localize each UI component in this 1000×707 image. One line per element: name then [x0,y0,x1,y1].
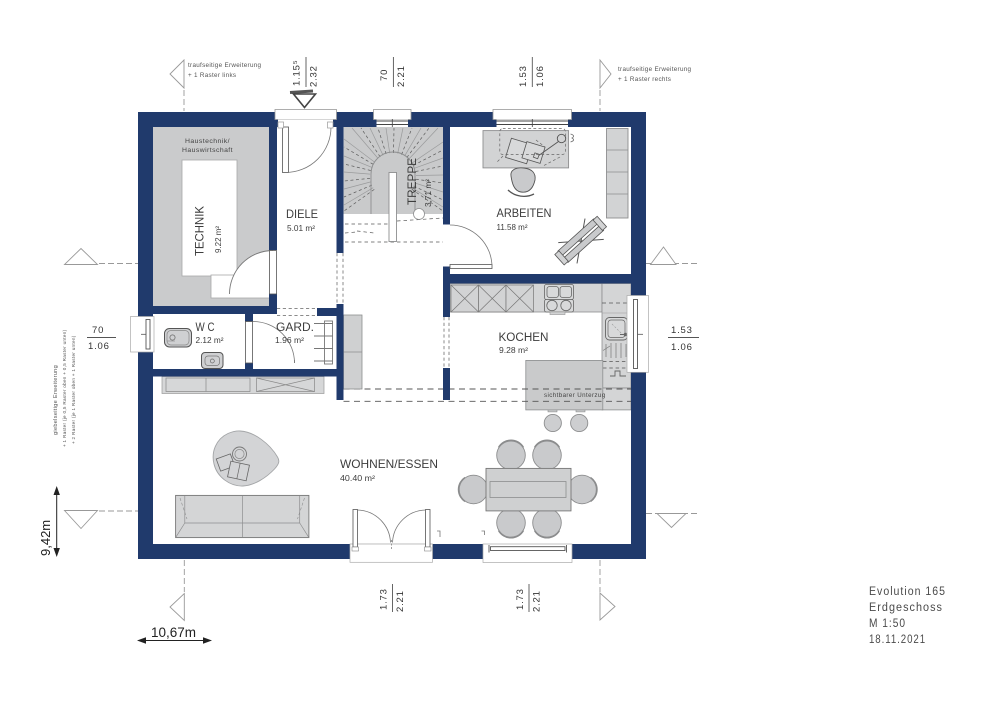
svg-text:+ 1 Raster links: + 1 Raster links [188,72,236,79]
svg-text:Haustechnik/: Haustechnik/ [185,138,230,145]
svg-text:2.21: 2.21 [396,65,407,87]
svg-text:+ 1 Raster rechts: + 1 Raster rechts [618,76,671,83]
svg-text:1.06: 1.06 [535,65,546,87]
svg-text:2.21: 2.21 [532,590,543,612]
svg-text:Erdgeschoss: Erdgeschoss [869,602,943,614]
svg-text:1.53: 1.53 [671,325,693,336]
svg-text:1.15⁵: 1.15⁵ [292,60,303,86]
svg-text:Hauswirtschaft: Hauswirtschaft [182,147,233,154]
svg-text:70: 70 [92,325,104,336]
svg-text:TREPPE: TREPPE [407,158,419,205]
svg-text:ARBEITEN: ARBEITEN [497,208,552,220]
svg-text:1.73: 1.73 [515,588,526,610]
svg-text:KOCHEN: KOCHEN [499,332,549,344]
svg-text:5.01 m²: 5.01 m² [287,224,315,233]
svg-text:sichtbarer Unterzug: sichtbarer Unterzug [544,392,606,399]
svg-text:9.28 m²: 9.28 m² [499,346,528,355]
svg-text:GARD.: GARD. [276,322,314,334]
svg-text:40.40 m²: 40.40 m² [340,474,375,483]
svg-text:M 1:50: M 1:50 [869,618,906,630]
svg-text:18.11.2021: 18.11.2021 [869,634,926,646]
svg-text:10,67m: 10,67m [151,625,196,640]
svg-text:giebelseitige Erweiterung: giebelseitige Erweiterung [53,365,59,435]
svg-text:Evolution 165: Evolution 165 [869,586,946,598]
svg-text:70: 70 [379,69,390,81]
svg-text:1.96 m²: 1.96 m² [275,336,304,345]
svg-text:9.22 m²: 9.22 m² [214,226,223,253]
svg-text:WOHNEN/ESSEN: WOHNEN/ESSEN [340,457,438,471]
svg-text:2.12 m²: 2.12 m² [196,336,224,345]
svg-text:1.53: 1.53 [518,65,529,87]
svg-text:traufseitige Erweiterung: traufseitige Erweiterung [188,62,262,69]
svg-text:1.73: 1.73 [379,588,390,610]
svg-text:TECHNIK: TECHNIK [195,206,207,256]
svg-text:1.06: 1.06 [88,341,110,352]
svg-text:11.58 m²: 11.58 m² [497,223,528,232]
svg-text:9,42m: 9,42m [38,520,53,556]
svg-text:W C: W C [196,322,215,334]
svg-text:+ 2 Raster (je 1 Raster oben +: + 2 Raster (je 1 Raster oben + 1 Raster … [71,335,76,444]
svg-text:+ 1 Raster (je 0,5 Raster oben: + 1 Raster (je 0,5 Raster oben + 0,5 Ras… [62,329,67,447]
svg-text:traufseitige Erweiterung: traufseitige Erweiterung [618,66,692,73]
svg-text:1.06: 1.06 [671,342,693,353]
svg-text:2.21: 2.21 [395,590,406,612]
svg-text:2.32: 2.32 [309,65,320,87]
svg-text:DIELE: DIELE [286,209,318,221]
svg-text:3,71 m²: 3,71 m² [424,179,433,207]
